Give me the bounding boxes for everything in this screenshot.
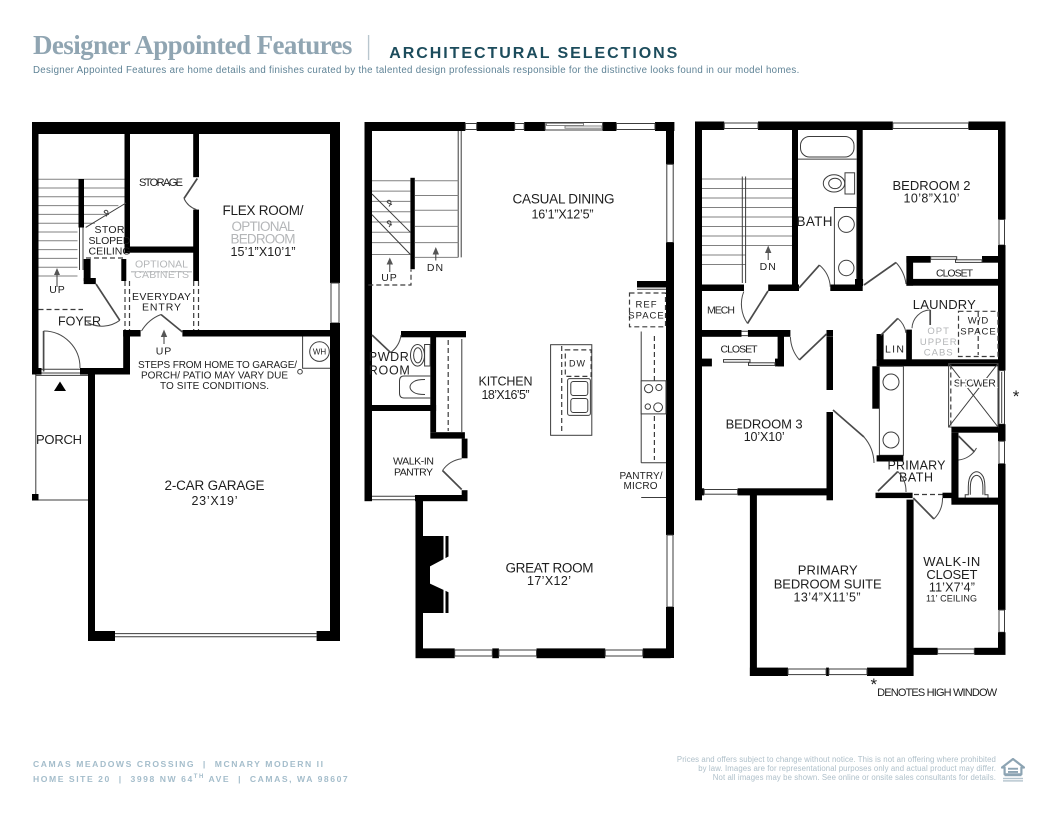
svg-text:UP: UP [156,346,173,358]
svg-text:LIN: LIN [885,343,905,355]
svg-text:GREAT ROOM: GREAT ROOM [506,560,595,575]
svg-text:SPACE: SPACE [628,311,665,322]
svg-text:STEPS FROM HOME TO GARAGE/: STEPS FROM HOME TO GARAGE/ [138,360,298,371]
svg-text:CASUAL DINING: CASUAL DINING [513,192,616,207]
svg-text:18’X16’5”: 18’X16’5” [482,388,531,402]
svg-text:TO SITE CONDITIONS.: TO SITE CONDITIONS. [160,381,270,392]
svg-text:ROOM: ROOM [369,364,411,378]
svg-text:PRIMARY: PRIMARY [798,563,859,578]
svg-text:DENOTES HIGH WINDOW: DENOTES HIGH WINDOW [877,687,998,699]
svg-text:15’1”X10’1”: 15’1”X10’1” [231,245,297,259]
svg-text:CABINETS: CABINETS [134,269,190,281]
svg-text:OPT: OPT [927,326,950,337]
svg-text:KITCHEN: KITCHEN [479,375,534,389]
svg-text:16’1”X12’5”: 16’1”X12’5” [532,207,595,221]
svg-text:REF: REF [636,300,658,311]
svg-text:DN: DN [427,262,444,274]
svg-text:23’X19’: 23’X19’ [192,494,239,508]
svg-text:WH: WH [313,348,327,357]
svg-text:LAUNDRY: LAUNDRY [913,297,977,312]
svg-text:10’X10’: 10’X10’ [744,430,786,444]
svg-text:SHOWER: SHOWER [954,377,997,389]
svg-text:CABS: CABS [924,347,954,358]
svg-text:W/D: W/D [968,316,989,327]
svg-text:BATH: BATH [797,214,834,229]
svg-text:11’ CEILING: 11’ CEILING [926,593,978,603]
svg-text:10’8”X10’: 10’8”X10’ [904,191,961,205]
svg-text:FLEX ROOM/: FLEX ROOM/ [223,203,305,218]
svg-text:FOYER: FOYER [58,315,102,329]
svg-text:STORAGE: STORAGE [139,177,184,189]
svg-text:PORCH/ PATIO MAY VARY DUE: PORCH/ PATIO MAY VARY DUE [141,370,289,381]
svg-text:MECH: MECH [707,305,736,317]
svg-text:PANTRY: PANTRY [394,466,434,478]
svg-text:UP: UP [49,284,66,296]
svg-text:PORCH: PORCH [36,432,83,447]
svg-text:SPACE: SPACE [960,327,997,338]
svg-text:CEILING: CEILING [89,246,132,258]
svg-text:*: * [1013,387,1020,406]
svg-text:ENTRY: ENTRY [142,302,182,314]
svg-text:CLOSET: CLOSET [936,267,974,279]
svg-text:2-CAR GARAGE: 2-CAR GARAGE [165,478,266,493]
svg-text:DN: DN [760,261,777,273]
svg-text:MICRO: MICRO [624,481,659,492]
svg-text:17’X12’: 17’X12’ [527,574,572,588]
svg-text:UP: UP [381,272,398,284]
svg-text:DW: DW [569,359,586,369]
svg-text:CLOSET: CLOSET [721,343,759,355]
svg-text:PWDR: PWDR [369,350,410,364]
svg-text:13’4”X11’5”: 13’4”X11’5” [794,590,862,604]
